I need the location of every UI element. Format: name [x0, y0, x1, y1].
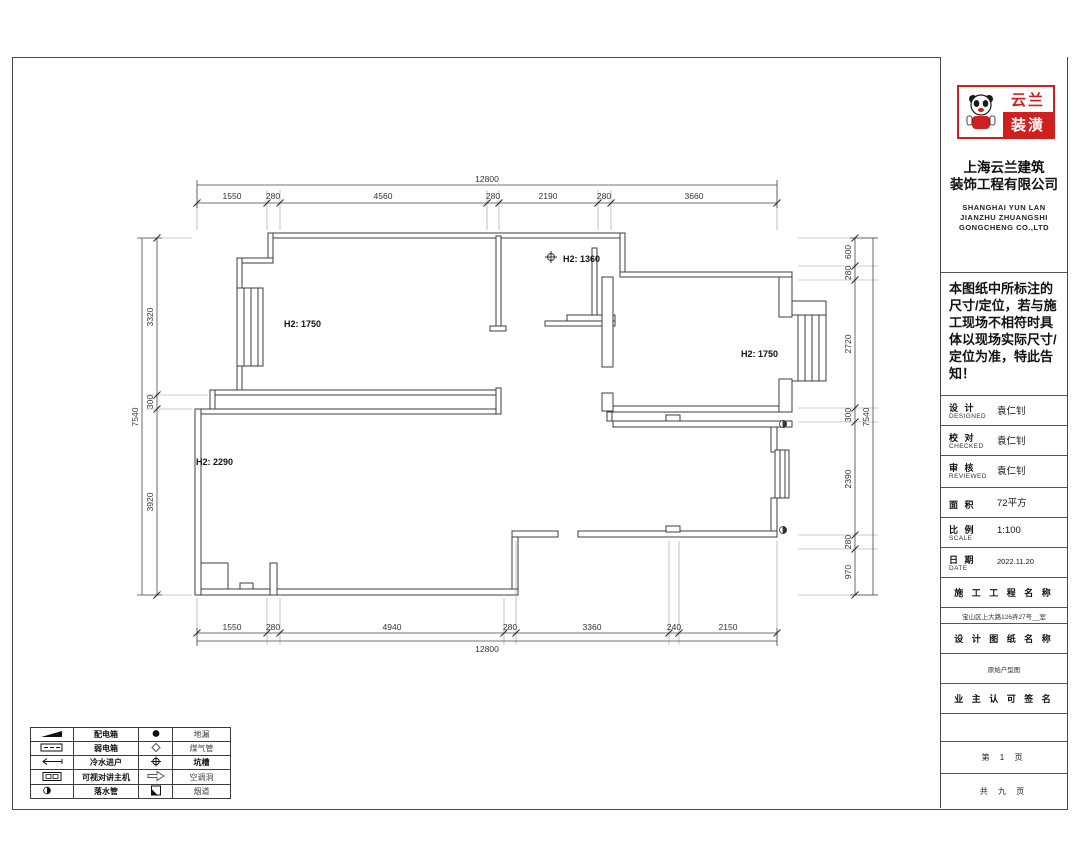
- dim-total-bottom: 12800: [475, 644, 499, 654]
- room-label: H2: 1750: [284, 319, 321, 329]
- pit-icon: [150, 756, 162, 767]
- gas-pipe-icon: [150, 742, 162, 753]
- field-label-en: CHECKED: [949, 443, 984, 450]
- company-name-en-line3: GONGCHENG CO.,LTD: [941, 223, 1067, 233]
- company-name-cn: 上海云兰建筑 装饰工程有限公司: [941, 159, 1067, 193]
- dim-label: 4940: [383, 622, 402, 632]
- owner-signature-header: 业 主 认 可 签 名: [941, 683, 1067, 713]
- drawing-name: 原始户型图: [941, 653, 1067, 683]
- dim-label: 600: [843, 245, 853, 259]
- legend-label: 空调洞: [173, 770, 231, 785]
- field-value: 2022.11.20: [997, 557, 1034, 566]
- field-label-en: DESIGNED: [949, 413, 986, 420]
- legend-table: 配电箱 地漏 弱电箱 煤气管 冷水进户 坑槽 可视对讲主机 空调洞 落水管 烟道: [30, 727, 231, 799]
- legend-label: 可视对讲主机: [74, 770, 139, 785]
- legend-row: 落水管 烟道: [31, 785, 231, 799]
- dim-label: 300: [843, 408, 853, 422]
- dimension-ticks: [154, 200, 859, 637]
- dim-label: 3320: [145, 307, 155, 326]
- dim-total-right: 7540: [861, 407, 871, 426]
- field-label-en: SCALE: [949, 535, 972, 542]
- dim-label: 280: [597, 191, 611, 201]
- dimension-notice: 本图纸中所标注的尺寸/定位，若与施工现场不相符时具体以现场实际尺寸/定位为准，特…: [941, 272, 1067, 395]
- cold-water-inlet-icon: [39, 756, 65, 767]
- panda-mascot-icon: [959, 87, 1003, 137]
- legend-label: 冷水进户: [74, 756, 139, 770]
- legend-label: 落水管: [74, 785, 139, 799]
- legend-label: 烟道: [173, 785, 231, 799]
- brand-name-top: 云兰: [1003, 87, 1053, 112]
- field-label-en: DATE: [949, 565, 967, 572]
- dim-label: 3660: [685, 191, 704, 201]
- dim-label: 970: [843, 565, 853, 579]
- dim-label: 4560: [374, 191, 393, 201]
- project-name-header: 施 工 工 程 名 称: [941, 577, 1067, 607]
- legend-label: 弱电箱: [74, 742, 139, 756]
- company-name-en-line2: JIANZHU ZHUANGSHI: [941, 213, 1067, 223]
- page-number: 第 1 页: [941, 741, 1067, 773]
- room-label: H2: 1360: [563, 254, 600, 264]
- legend-label: 坑槽: [173, 756, 231, 770]
- field-value: 1:100: [997, 525, 1021, 536]
- company-name-en-line1: SHANGHAI YUN LAN: [941, 203, 1067, 213]
- legend-row: 弱电箱 煤气管: [31, 742, 231, 756]
- weak-current-box-icon: [39, 742, 65, 753]
- dim-label: 3360: [583, 622, 602, 632]
- window-bay-right: [792, 301, 826, 381]
- flue-icon: [150, 785, 162, 796]
- legend-row: 配电箱 地漏: [31, 728, 231, 742]
- dim-label: 280: [486, 191, 500, 201]
- dim-label: 280: [843, 266, 853, 280]
- dim-total-left: 7540: [130, 407, 140, 426]
- field-date: 日 期 DATE 2022.11.20: [941, 547, 1067, 577]
- window-left: [237, 288, 263, 366]
- room-labels: H2: 1750 H2: 1360 H2: 1750 H2: 2290: [196, 254, 778, 467]
- drawing-name-header: 设 计 图 纸 名 称: [941, 623, 1067, 653]
- distribution-box-icon: [39, 728, 65, 739]
- field-value: 72平方: [997, 495, 1027, 509]
- walls: [195, 233, 792, 595]
- dim-label: 2390: [843, 469, 853, 488]
- dim-total-top: 12800: [475, 174, 499, 184]
- company-name-cn-line2: 装饰工程有限公司: [941, 176, 1067, 193]
- video-intercom-icon: [39, 771, 65, 782]
- field-label-en: REVIEWED: [949, 473, 987, 480]
- dim-label: 280: [266, 191, 280, 201]
- room-label: H2: 1750: [741, 349, 778, 359]
- owner-signature-box: [941, 713, 1067, 741]
- field-value: 袁仁钊: [997, 403, 1026, 417]
- dim-label: 2150: [719, 622, 738, 632]
- ac-hole-icon: [146, 770, 166, 782]
- dim-label: 280: [266, 622, 280, 632]
- page-total: 共 九 页: [941, 773, 1067, 808]
- field-checked: 校 对 CHECKED 袁仁钊: [941, 425, 1067, 455]
- room-label: H2: 2290: [196, 457, 233, 467]
- field-reviewed: 审 核 REVIEWED 袁仁钊: [941, 455, 1067, 487]
- dim-label: 1550: [223, 622, 242, 632]
- field-value: 袁仁钊: [997, 433, 1026, 447]
- dim-label: 280: [503, 622, 517, 632]
- company-name-en: SHANGHAI YUN LAN JIANZHU ZHUANGSHI GONGC…: [941, 203, 1067, 233]
- dim-label: 2720: [843, 334, 853, 353]
- field-value: 袁仁钊: [997, 463, 1026, 477]
- title-block: 云兰 装潢 上海云兰建筑 装饰工程有限公司 SHANGHAI YUN LAN J…: [940, 57, 1067, 808]
- dim-label: 240: [667, 622, 681, 632]
- legend-row: 冷水进户 坑槽: [31, 756, 231, 770]
- field-label-cn: 面 积: [949, 498, 976, 511]
- dim-label: 1550: [223, 191, 242, 201]
- dim-label: 300: [145, 395, 155, 409]
- company-logo: 云兰 装潢: [957, 85, 1055, 139]
- field-scale: 比 例 SCALE 1:100: [941, 517, 1067, 547]
- brand-name-bottom: 装潢: [1003, 112, 1053, 137]
- window-lower-right: [775, 450, 789, 498]
- floor-drain-icon: [150, 728, 162, 739]
- company-name-cn-line1: 上海云兰建筑: [941, 159, 1067, 176]
- legend-label: 煤气管: [173, 742, 231, 756]
- entry-closet: [201, 563, 228, 589]
- dim-label: 3920: [145, 492, 155, 511]
- legend-label: 地漏: [173, 728, 231, 742]
- field-area: 面 积 72平方: [941, 487, 1067, 517]
- downpipe-icon: [39, 785, 65, 796]
- pit-symbol: [545, 251, 557, 263]
- dim-label: 2190: [539, 191, 558, 201]
- field-designed: 设 计 DESIGNED 袁仁钊: [941, 395, 1067, 425]
- project-address: 宝山区上大路126弄27号__室: [941, 607, 1067, 623]
- dim-label: 280: [843, 535, 853, 549]
- legend-label: 配电箱: [74, 728, 139, 742]
- legend-row: 可视对讲主机 空调洞: [31, 770, 231, 785]
